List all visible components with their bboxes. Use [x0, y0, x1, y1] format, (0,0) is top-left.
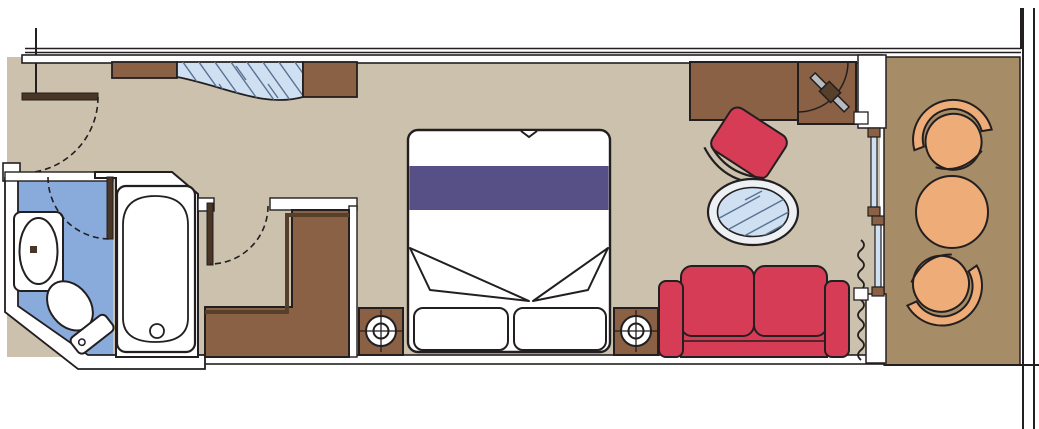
nightstand-right — [614, 308, 658, 355]
door-frame-cap — [872, 287, 884, 296]
door-glass-panel-1 — [871, 137, 877, 207]
bathtub-basin — [123, 196, 188, 342]
pillow-left — [414, 308, 508, 350]
sofa-cushion-left — [681, 266, 754, 336]
door-frame-cap — [868, 128, 880, 137]
double-bed — [408, 130, 610, 352]
door-jamb-top — [854, 112, 868, 124]
closet-cabinet-left — [112, 62, 177, 78]
door-jamb-bottom — [854, 288, 868, 300]
door-frame-cap — [868, 207, 880, 216]
bathroom-door-leaf — [107, 177, 113, 239]
nook-wall-vertical — [349, 206, 357, 357]
closet-cabinet-right — [303, 62, 357, 97]
bed-runner — [410, 166, 609, 210]
nightstand-left — [359, 308, 403, 355]
corridor-wall-line — [25, 49, 1021, 53]
pillow-right — [514, 308, 606, 350]
sofa-cushion-right — [754, 266, 827, 336]
entry-door-leaf — [22, 93, 98, 100]
sink-faucet — [30, 246, 37, 253]
sofa — [659, 266, 849, 357]
nook-wall-stub — [270, 198, 357, 210]
floor-plan — [0, 0, 1039, 429]
glass-oval-table — [708, 179, 798, 245]
door-frame-cap — [872, 216, 884, 225]
sofa-arm-left — [659, 281, 683, 357]
sink-basin — [20, 218, 58, 284]
door-glass-panel-2 — [875, 225, 881, 287]
balcony-wall-bottom — [866, 294, 886, 363]
bathtub-drain — [150, 324, 164, 338]
balcony-round-table — [916, 176, 988, 248]
dressing-door-leaf — [207, 203, 213, 265]
sofa-arm-right — [825, 281, 849, 357]
